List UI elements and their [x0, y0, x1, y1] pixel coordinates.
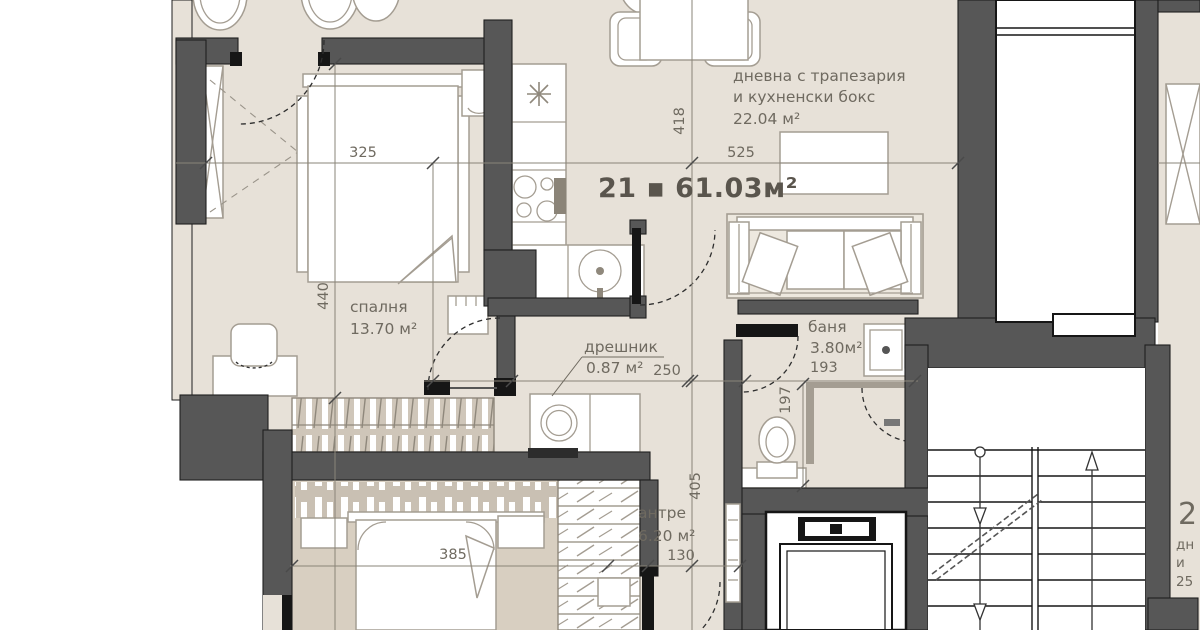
dim-525: 525 — [727, 145, 755, 161]
floor-plan-drawing: 21 ▪ 61.03м² дневна с трапезария и кухне… — [0, 0, 1200, 630]
toilet-icon — [759, 417, 795, 463]
bedroom-label: спалня — [350, 298, 408, 316]
closet-label: дрешник — [584, 338, 658, 356]
desk-chair — [231, 324, 277, 366]
bath-area: 3.80м² — [810, 339, 862, 357]
dining-table — [640, 0, 748, 60]
dim-197: 197 — [778, 386, 794, 414]
dim-193: 193 — [810, 360, 838, 376]
living-area: 22.04 м² — [733, 110, 800, 128]
elevator-bottom — [766, 512, 906, 630]
living-label-1: дневна с трапезария — [733, 67, 906, 85]
dim-325: 325 — [349, 145, 377, 161]
fridge-icon — [527, 82, 551, 106]
hall-radiator — [726, 504, 740, 602]
dim-418: 418 — [672, 107, 688, 135]
bath-label: баня — [808, 318, 847, 336]
living-label-2: и кухненски бокс — [733, 88, 875, 106]
dim-405: 405 — [688, 472, 704, 500]
radiator — [448, 296, 488, 334]
door-handle — [884, 419, 900, 426]
nightstand — [301, 518, 347, 548]
staircase — [928, 368, 1145, 630]
elevator-shaft-top — [996, 0, 1135, 336]
neighbor-line3: 25 — [1176, 574, 1193, 590]
dim-250: 250 — [653, 363, 681, 379]
dim-385: 385 — [439, 547, 467, 563]
toilet-tank — [757, 462, 797, 478]
hall-area: 6.20 м² — [638, 527, 695, 545]
hall-label: антре — [638, 504, 686, 522]
neighbor-number: 2 — [1178, 497, 1197, 532]
neighbor-line1: дн — [1176, 537, 1194, 553]
apartment-title: 21 ▪ 61.03м² — [598, 173, 798, 204]
door-leaf — [736, 324, 798, 337]
closet-area: 0.87 м² — [586, 359, 643, 377]
dim-130: 130 — [667, 548, 695, 564]
nightstand — [498, 516, 544, 548]
window-right — [1166, 84, 1200, 224]
elevator-car — [780, 544, 892, 630]
wardrobe2 — [558, 480, 640, 630]
dim-440: 440 — [316, 282, 332, 310]
floor-plan: 21 ▪ 61.03м² дневна с трапезария и кухне… — [0, 0, 1200, 630]
neighbor-line2: и — [1176, 555, 1185, 571]
bedroom-area: 13.70 м² — [350, 320, 417, 338]
door-leaf — [632, 228, 641, 304]
door-leaf — [642, 576, 654, 630]
